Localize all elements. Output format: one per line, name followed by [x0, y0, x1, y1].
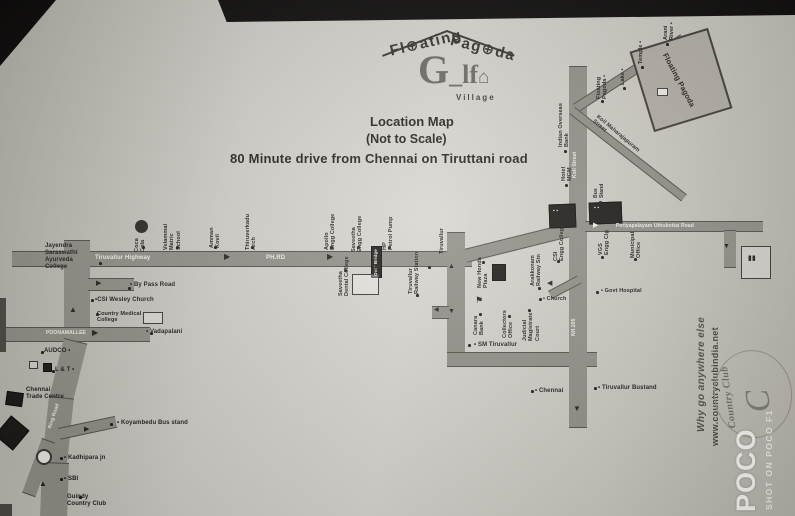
map-dot: [599, 201, 602, 204]
map-label: Municipal Office: [630, 232, 643, 258]
map-label: • SM Tiruvallur: [474, 342, 517, 349]
map-dot: [623, 87, 626, 90]
map-dot: [564, 150, 567, 153]
promo-tagline: Why go anywhere else: [696, 317, 707, 432]
map-label: Indian Overseas Bank: [558, 103, 571, 147]
map-label: Arakkonam Railway Stn: [530, 254, 543, 286]
map-label: Thiruverkadu Arch: [245, 214, 258, 250]
scale-note: (Not to Scale): [366, 132, 447, 146]
map-label: ◀: [434, 307, 439, 314]
map-dot: [176, 246, 179, 249]
map-dot: [482, 261, 485, 264]
map-label: Bus Stand: [594, 184, 606, 198]
map-label: ⚑: [373, 263, 381, 274]
map-dot: [41, 351, 44, 354]
map-label: • Govt Hospital: [601, 288, 642, 294]
map-dot: [539, 298, 542, 301]
map-dot: [468, 344, 471, 347]
map-label: L & T •: [55, 367, 74, 374]
map-dot: [79, 496, 82, 499]
logo-letters-lf: lf: [462, 60, 478, 89]
map-dot: [60, 478, 63, 481]
map-dot: [596, 291, 599, 294]
map-shape: [5, 391, 24, 407]
map-label: ◀: [547, 280, 552, 288]
map-dot: [565, 184, 568, 187]
map-label: •CSI Wesley Church: [95, 297, 154, 304]
map-dot: [150, 332, 153, 335]
map-label: ▶: [96, 280, 101, 288]
logo-underscore: _: [449, 60, 462, 89]
map-label: Velammal Matric School: [163, 224, 182, 250]
map-label: • SBI: [64, 476, 78, 483]
map-label: ▶: [224, 252, 230, 261]
golf-logo: G_lf⌂: [418, 50, 490, 90]
map-dot: [508, 315, 511, 318]
map-dot: [142, 246, 145, 249]
map-label: • Kadhipara jn: [64, 455, 106, 462]
drive-time-subtitle: 80 Minute drive from Chennai on Tiruttan…: [230, 151, 528, 166]
map-label: ▼: [723, 243, 730, 251]
map-label: Amman Kovil: [209, 227, 222, 248]
map-dot: [357, 246, 360, 249]
map-shape: [492, 264, 506, 281]
map-dot: [110, 423, 113, 426]
map-label: ▪ ▪: [553, 209, 558, 215]
map-label: • Church: [543, 296, 567, 302]
map-label: AUDCO •: [44, 348, 70, 355]
map-label: Canara Bank: [473, 316, 486, 335]
map-dot: [344, 269, 347, 272]
map-shape: [657, 88, 668, 96]
map-dot: [641, 66, 644, 69]
map-shape: [352, 274, 379, 295]
map-shape: [43, 363, 52, 372]
map-dot: [601, 256, 604, 259]
map-shape: [0, 504, 12, 516]
map-shape: [29, 361, 38, 369]
map-label: Floating Pagoda •: [596, 75, 609, 99]
country-club-name: Country Club: [719, 366, 739, 429]
map-shape: [741, 246, 771, 279]
road-segment: [447, 232, 465, 354]
map-label: Coca Cola: [134, 238, 147, 252]
map-dot: [91, 299, 94, 302]
house-icon: ⌂: [478, 67, 489, 88]
map-dot: [388, 246, 391, 249]
map-dot: [601, 100, 604, 103]
map-label: ▶: [92, 328, 98, 337]
map-dot: [634, 258, 637, 261]
map-label: ▪ ▪: [594, 206, 599, 212]
map-label: Arani River •: [663, 22, 676, 40]
map-shape: [0, 415, 30, 450]
map-label: ▲: [69, 305, 77, 314]
map-label: ⚑: [475, 295, 483, 306]
poco-watermark: POCO: [731, 428, 762, 512]
map-label: Tiruvallur Highway: [95, 255, 150, 262]
map-dot: [666, 43, 669, 46]
map-dot: [128, 287, 131, 290]
map-label: Guindy Country Club: [67, 494, 106, 508]
map-dot: [531, 390, 534, 393]
map-dot: [557, 260, 560, 263]
map-dot: [479, 313, 482, 316]
map-label: POONAMALLEE: [46, 331, 86, 337]
map-label: ▲: [39, 479, 47, 488]
shot-on-watermark: SHOT ON POCO F1: [764, 409, 774, 510]
photographed-location-map: Tiruvallur HighwayPH.RDPOONAMALLEERing R…: [0, 0, 795, 516]
map-shape: [0, 298, 6, 352]
map-label: ▶: [593, 222, 598, 230]
map-label: Tiruvallur Railway Station: [408, 252, 421, 294]
map-label: • Chennai: [535, 388, 563, 395]
map-label: Saveetha Dental College: [338, 256, 351, 296]
map-label: • By Pass Road: [130, 282, 175, 289]
map-shape: [135, 220, 148, 233]
map-label: ▶: [84, 426, 89, 434]
map-label: NH.205: [572, 318, 578, 336]
map-dot: [214, 246, 217, 249]
map-dot: [99, 262, 102, 265]
map-label: Country Medical College: [97, 311, 141, 324]
map-dot: [594, 387, 597, 390]
map-dot: [538, 287, 541, 290]
map-shape: [36, 449, 52, 465]
map-label: ▼: [573, 404, 581, 413]
map-label: Temple •: [638, 41, 644, 64]
map-label: Jayendra Saraswathi Ayurveda College: [45, 243, 78, 271]
map-label: PH.RD: [266, 255, 285, 262]
map-label: Chennai Trade Centre: [26, 387, 64, 401]
map-dot: [528, 309, 531, 312]
map-dot: [96, 313, 99, 316]
map-label: Hotel MGM: [561, 167, 574, 181]
logo-village-text: Village: [456, 93, 496, 102]
logo-letter-g: G: [418, 47, 449, 92]
map-dot: [52, 370, 55, 373]
map-label: Lake •: [620, 68, 626, 85]
map-label: CSI Engg College: [553, 225, 566, 261]
map-label: ▲: [448, 263, 455, 271]
map-label: HP Petrol Pump: [382, 217, 395, 251]
map-label: Judicial Magistrate Court: [522, 312, 541, 341]
map-label: VGS Engg Clg: [598, 230, 611, 255]
map-label: Tiruvallur: [439, 228, 445, 254]
map-title: Location Map: [370, 114, 454, 129]
map-label: ▶: [327, 252, 333, 261]
map-label: Apollo Engg College: [324, 214, 337, 250]
map-label: • Tiruvallur Bustand: [598, 385, 657, 392]
map-dot: [416, 294, 419, 297]
map-label: ▮▮: [748, 255, 756, 263]
map-dot: [251, 246, 254, 249]
map-shape: [143, 312, 163, 324]
map-label: ▼: [448, 308, 455, 316]
map-label: • Koyambedu Bus stand: [117, 420, 188, 427]
map-dot: [330, 246, 333, 249]
map-dot: [428, 266, 431, 269]
map-label: Periyapalayam Uthukottai Road: [616, 224, 694, 230]
map-dot: [60, 457, 63, 460]
location-map: Tiruvallur HighwayPH.RDPOONAMALLEERing R…: [0, 0, 795, 516]
